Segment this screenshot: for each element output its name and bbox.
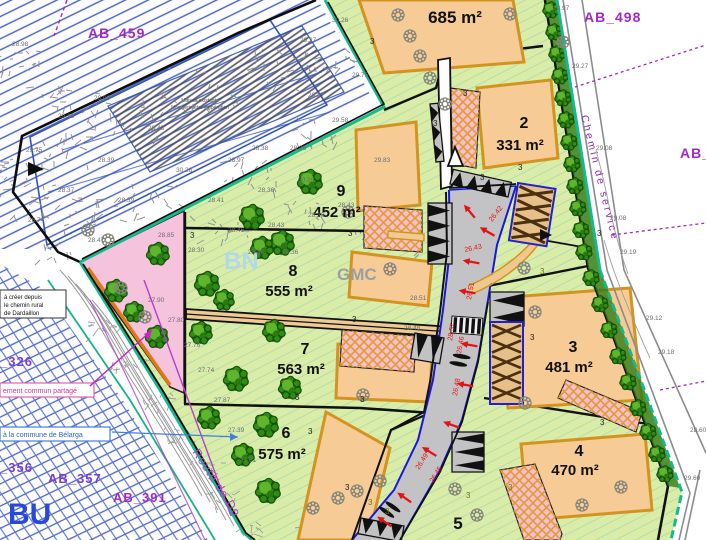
svg-text:27.74: 27.74 bbox=[198, 367, 215, 374]
svg-text:7: 7 bbox=[301, 341, 310, 358]
svg-text:3: 3 bbox=[308, 427, 313, 436]
svg-text:3: 3 bbox=[508, 483, 513, 492]
svg-text:27.76: 27.76 bbox=[184, 342, 201, 349]
svg-text:481 m²: 481 m² bbox=[545, 359, 593, 376]
svg-text:3: 3 bbox=[368, 498, 373, 507]
svg-text:29.60: 29.60 bbox=[684, 475, 701, 482]
svg-text:5: 5 bbox=[453, 514, 462, 533]
svg-text:3: 3 bbox=[360, 395, 365, 404]
svg-text:27.81: 27.81 bbox=[240, 457, 257, 464]
svg-text:29.19: 29.19 bbox=[620, 249, 637, 256]
svg-text:3: 3 bbox=[569, 339, 578, 356]
svg-text:4: 4 bbox=[575, 443, 584, 460]
svg-text:3: 3 bbox=[600, 418, 605, 427]
svg-text:2: 2 bbox=[520, 115, 529, 132]
svg-text:27.87: 27.87 bbox=[214, 397, 231, 404]
svg-text:3: 3 bbox=[385, 507, 390, 516]
svg-text:28.48: 28.48 bbox=[404, 325, 421, 332]
svg-text:29.75: 29.75 bbox=[352, 72, 369, 79]
svg-text:575 m²: 575 m² bbox=[258, 446, 306, 463]
svg-text:27.90: 27.90 bbox=[148, 297, 165, 304]
svg-text:3: 3 bbox=[530, 333, 535, 342]
svg-text:28.37: 28.37 bbox=[58, 187, 75, 194]
svg-text:28.30: 28.30 bbox=[188, 247, 205, 254]
svg-text:27.80: 27.80 bbox=[168, 317, 185, 324]
svg-text:AB_498: AB_498 bbox=[584, 9, 641, 25]
svg-text:28.47: 28.47 bbox=[88, 237, 105, 244]
svg-text:28.38: 28.38 bbox=[252, 145, 269, 152]
svg-text:3: 3 bbox=[518, 163, 523, 172]
svg-text:3: 3 bbox=[190, 231, 195, 240]
svg-text:28.85: 28.85 bbox=[158, 232, 175, 239]
svg-text:28.97: 28.97 bbox=[228, 157, 245, 164]
svg-text:6: 6 bbox=[282, 425, 291, 442]
svg-text:29.18: 29.18 bbox=[58, 113, 75, 120]
svg-text:28.97: 28.97 bbox=[553, 5, 570, 12]
svg-text:Non périmètre d’opération: Non périmètre d’opération bbox=[171, 105, 229, 111]
svg-text:3: 3 bbox=[540, 267, 545, 276]
svg-text:28.43: 28.43 bbox=[268, 222, 285, 229]
svg-text:27.39: 27.39 bbox=[228, 427, 245, 434]
svg-text:29.08: 29.08 bbox=[610, 215, 627, 222]
svg-text:AB_49: AB_49 bbox=[680, 145, 706, 161]
svg-text:28.36: 28.36 bbox=[258, 187, 275, 194]
svg-text:29.75: 29.75 bbox=[26, 147, 43, 154]
svg-text:28.36: 28.36 bbox=[308, 212, 325, 219]
svg-text:3: 3 bbox=[345, 483, 350, 492]
svg-text:28.39: 28.39 bbox=[98, 157, 115, 164]
svg-text:à créer depuis: à créer depuis bbox=[4, 295, 42, 301]
svg-text:28.41: 28.41 bbox=[208, 197, 225, 204]
svg-text:28.98: 28.98 bbox=[12, 41, 29, 48]
svg-text:28.36: 28.36 bbox=[282, 249, 299, 256]
svg-text:3: 3 bbox=[295, 393, 300, 402]
svg-text:_356: _356 bbox=[0, 460, 33, 475]
svg-text:de Dardaillon: de Dardaillon bbox=[4, 311, 39, 317]
svg-text:3: 3 bbox=[348, 229, 353, 238]
svg-text:28.27: 28.27 bbox=[308, 92, 325, 99]
svg-text:555 m²: 555 m² bbox=[265, 283, 313, 300]
svg-text:AB_391: AB_391 bbox=[113, 490, 167, 505]
svg-text:28.51: 28.51 bbox=[410, 295, 427, 302]
svg-text:AB_459: AB_459 bbox=[88, 25, 145, 41]
svg-text:331 m²: 331 m² bbox=[496, 137, 544, 154]
svg-text:à la commune de Bélarga: à la commune de Bélarga bbox=[3, 432, 83, 439]
svg-text:29.18: 29.18 bbox=[658, 349, 675, 356]
svg-text:3: 3 bbox=[433, 119, 438, 128]
svg-text:AB_357: AB_357 bbox=[48, 471, 102, 486]
svg-text:29.83: 29.83 bbox=[374, 157, 391, 164]
svg-text:29.27: 29.27 bbox=[300, 37, 317, 44]
svg-text:ement commun partagé: ement commun partagé bbox=[3, 388, 77, 395]
svg-text:_326: _326 bbox=[0, 354, 33, 369]
svg-text:GMC: GMC bbox=[337, 265, 377, 284]
svg-text:30.26: 30.26 bbox=[176, 167, 193, 174]
svg-text:30.26: 30.26 bbox=[298, 177, 315, 184]
svg-text:8: 8 bbox=[289, 263, 298, 280]
svg-text:28.43: 28.43 bbox=[338, 202, 355, 209]
svg-text:3: 3 bbox=[463, 89, 468, 98]
svg-text:3: 3 bbox=[466, 491, 471, 500]
svg-text:le chemin rural: le chemin rural bbox=[4, 303, 43, 309]
svg-text:3: 3 bbox=[370, 37, 375, 46]
svg-text:470 m²: 470 m² bbox=[551, 462, 599, 479]
svg-text:29.12: 29.12 bbox=[646, 315, 663, 322]
svg-text:28.39: 28.39 bbox=[118, 197, 135, 204]
svg-text:28.38: 28.38 bbox=[248, 249, 265, 256]
svg-text:28.43: 28.43 bbox=[148, 125, 165, 132]
svg-text:9: 9 bbox=[337, 183, 346, 200]
svg-text:28.60: 28.60 bbox=[690, 427, 706, 434]
svg-text:3: 3 bbox=[480, 173, 485, 182]
svg-text:3: 3 bbox=[597, 229, 602, 238]
svg-text:563 m²: 563 m² bbox=[277, 361, 325, 378]
svg-text:30.26: 30.26 bbox=[332, 17, 349, 24]
svg-text:BU: BU bbox=[8, 498, 51, 531]
svg-text:28.90: 28.90 bbox=[94, 95, 111, 102]
svg-text:29.08: 29.08 bbox=[596, 145, 613, 152]
svg-text:685 m²: 685 m² bbox=[428, 8, 482, 27]
svg-text:28.36: 28.36 bbox=[290, 145, 307, 152]
svg-text:28.45: 28.45 bbox=[228, 227, 245, 234]
svg-text:29.58: 29.58 bbox=[332, 117, 349, 124]
svg-text:28.74: 28.74 bbox=[28, 217, 45, 224]
svg-text:29.27: 29.27 bbox=[572, 63, 589, 70]
svg-text:3: 3 bbox=[352, 315, 357, 324]
